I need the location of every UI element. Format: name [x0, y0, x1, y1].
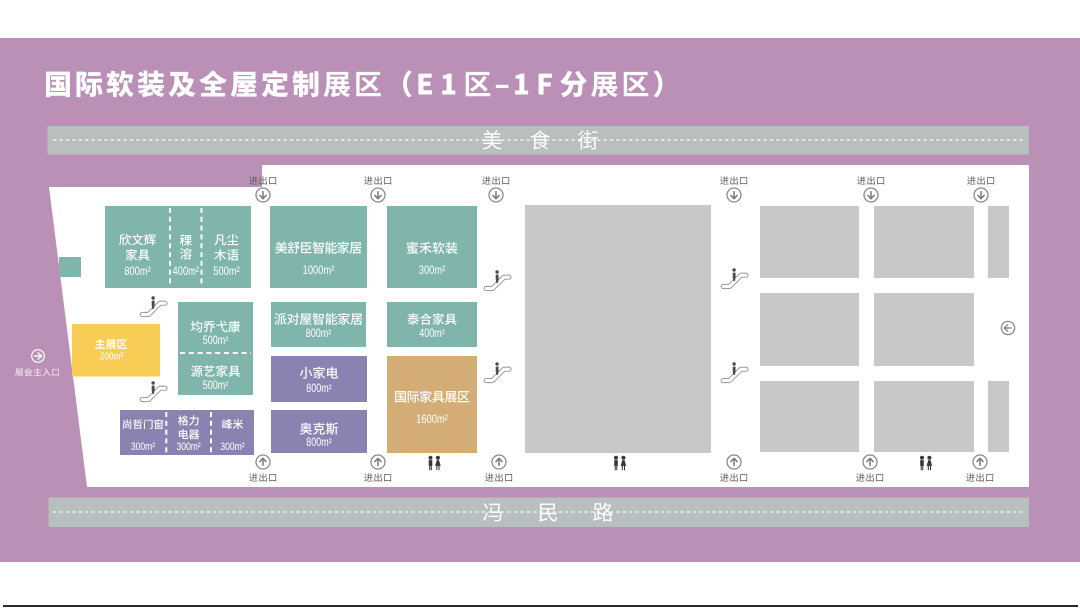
svg-text:500m²: 500m²: [203, 380, 229, 392]
svg-text:200m²: 200m²: [100, 349, 123, 361]
svg-text:800m²: 800m²: [306, 437, 332, 449]
svg-text:300m²: 300m²: [220, 441, 245, 453]
svg-text:400m²: 400m²: [173, 265, 200, 278]
svg-text:1600m²: 1600m²: [416, 413, 448, 426]
svg-text:300m²: 300m²: [176, 441, 201, 453]
svg-text:800m²: 800m²: [306, 383, 332, 395]
svg-text:300m²: 300m²: [419, 264, 446, 277]
svg-text:400m²: 400m²: [419, 328, 445, 340]
svg-text:500m²: 500m²: [213, 265, 240, 278]
svg-text:1000m²: 1000m²: [303, 264, 335, 277]
svg-text:800m²: 800m²: [306, 328, 332, 340]
svg-text:800m²: 800m²: [124, 265, 151, 278]
svg-text:300m²: 300m²: [131, 441, 156, 453]
svg-text:500m²: 500m²: [203, 335, 229, 347]
